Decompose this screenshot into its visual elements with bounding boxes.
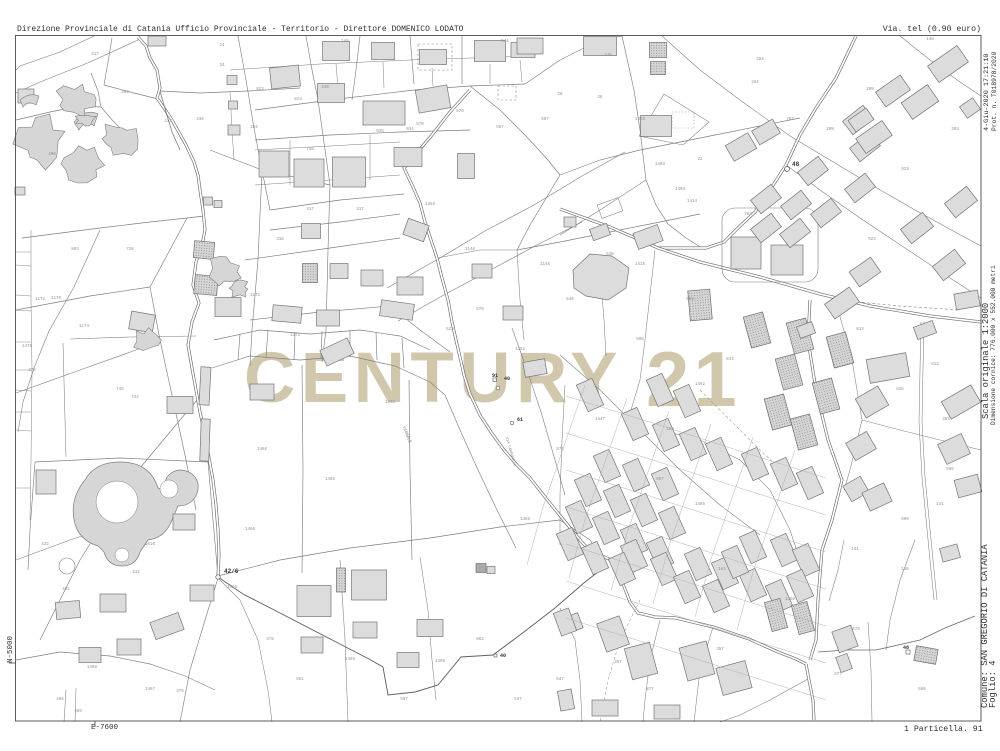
svg-text:746: 746 [116,388,124,392]
svg-text:567: 567 [496,126,504,130]
svg-text:744: 744 [131,396,139,400]
svg-text:815: 815 [896,388,904,392]
svg-text:61: 61 [517,417,523,423]
svg-text:417: 417 [91,53,99,57]
svg-text:1356: 1356 [425,203,436,207]
svg-text:1475: 1475 [22,345,33,349]
svg-text:148: 148 [926,38,934,42]
svg-text:935: 935 [376,130,384,134]
svg-text:440: 440 [321,86,329,90]
svg-text:318: 318 [276,238,284,242]
svg-text:163: 163 [718,568,726,572]
svg-text:1176: 1176 [51,297,62,301]
svg-text:26: 26 [557,93,563,97]
svg-text:1174: 1174 [79,325,90,329]
svg-text:570: 570 [456,110,464,114]
svg-text:298: 298 [826,128,834,132]
svg-text:1414: 1414 [687,200,698,204]
svg-text:1415: 1415 [635,263,646,267]
svg-text:585: 585 [946,468,954,472]
svg-text:507: 507 [400,698,408,702]
svg-text:1469: 1469 [435,660,446,664]
svg-text:402: 402 [62,588,70,592]
svg-text:148: 148 [901,568,909,572]
svg-text:284: 284 [756,58,764,62]
svg-text:697: 697 [656,478,664,482]
svg-text:746: 746 [604,54,612,58]
svg-text:1463: 1463 [385,401,396,405]
svg-text:408: 408 [48,153,56,157]
svg-text:274: 274 [28,369,36,373]
svg-text:298: 298 [866,88,874,92]
svg-text:22: 22 [697,158,703,162]
svg-text:596: 596 [636,338,644,342]
svg-text:823: 823 [294,98,302,102]
svg-text:877: 877 [834,673,842,677]
svg-text:489: 489 [74,710,82,714]
svg-text:1462: 1462 [695,383,706,387]
svg-text:357: 357 [614,661,622,665]
svg-text:1468: 1468 [87,666,98,670]
svg-text:1 Particella. 91: 1 Particella. 91 [904,724,983,734]
svg-text:679: 679 [852,628,860,632]
svg-text:1447: 1447 [595,418,606,422]
svg-text:Prot. n. T018978/2020: Prot. n. T018978/2020 [991,51,998,131]
svg-text:Via. tel (0.90 euro): Via. tel (0.90 euro) [883,24,981,34]
svg-text:862: 862 [476,638,484,642]
svg-text:923: 923 [901,168,909,172]
svg-text:40: 40 [504,376,510,382]
svg-text:1465: 1465 [325,478,336,482]
svg-text:1403: 1403 [635,118,646,122]
svg-text:485: 485 [56,698,64,702]
svg-text:547: 547 [556,678,564,682]
svg-text:303: 303 [942,418,950,422]
svg-text:803: 803 [71,248,79,252]
svg-text:1403: 1403 [655,163,666,167]
svg-text:548: 548 [606,253,614,257]
svg-text:24: 24 [219,44,225,48]
svg-text:40: 40 [500,653,506,659]
svg-text:N-5000: N-5000 [7,635,15,663]
svg-text:417: 417 [164,120,172,124]
svg-text:42/6: 42/6 [224,568,239,575]
svg-text:Foglio: 4: Foglio: 4 [988,660,998,708]
svg-text:1373: 1373 [290,334,301,338]
svg-text:738: 738 [126,248,134,252]
svg-text:24: 24 [219,64,225,68]
svg-text:812: 812 [931,363,939,367]
svg-text:432: 432 [41,543,49,547]
svg-text:1352: 1352 [515,348,526,352]
svg-text:284: 284 [250,126,258,130]
svg-text:809: 809 [901,518,909,522]
svg-text:588: 588 [686,298,694,302]
svg-text:48: 48 [903,645,909,651]
svg-text:91: 91 [492,373,498,379]
svg-text:141: 141 [851,548,859,552]
svg-text:763: 763 [744,213,752,217]
svg-text:317: 317 [356,208,364,212]
svg-text:1172: 1172 [250,294,261,298]
svg-text:163: 163 [666,428,674,432]
svg-text:763: 763 [786,118,794,122]
svg-text:378: 378 [176,690,184,694]
svg-text:567: 567 [541,118,549,122]
svg-text:1172: 1172 [35,298,46,302]
svg-text:1404: 1404 [675,188,686,192]
svg-text:523: 523 [446,328,454,332]
svg-text:561: 561 [296,678,304,682]
svg-text:317: 317 [306,208,314,212]
svg-text:823: 823 [256,88,264,92]
svg-text:1450: 1450 [785,598,796,602]
svg-text:E-7600: E-7600 [91,724,119,732]
svg-text:304: 304 [121,91,129,95]
svg-text:1016: 1016 [227,586,238,590]
svg-text:1466: 1466 [520,518,531,522]
svg-text:718: 718 [306,148,314,152]
svg-text:923: 923 [868,238,876,242]
svg-text:432: 432 [132,571,140,575]
svg-text:934: 934 [406,128,414,132]
svg-text:1466: 1466 [257,448,268,452]
svg-text:4-Giu-2020 17:21:10: 4-Giu-2020 17:21:10 [983,54,991,132]
svg-text:1469: 1469 [345,658,356,662]
svg-text:26: 26 [597,96,603,100]
svg-text:Direzione Provinciale di Catan: Direzione Provinciale di Catania Ufficio… [17,25,464,34]
svg-text:1146: 1146 [465,248,476,252]
svg-text:357: 357 [716,648,724,652]
svg-text:546: 546 [566,298,574,302]
svg-text:547: 547 [514,698,522,702]
svg-text:643: 643 [726,358,734,362]
svg-text:378: 378 [266,638,274,642]
svg-text:813: 813 [856,328,864,332]
svg-text:48: 48 [792,161,800,168]
svg-text:284: 284 [751,81,759,85]
svg-text:148: 148 [341,40,349,44]
svg-text:141: 141 [936,503,944,507]
svg-text:1010: 1010 [145,543,156,547]
svg-text:1146: 1146 [540,263,551,267]
svg-text:1466: 1466 [245,528,256,532]
svg-text:1467: 1467 [145,688,156,692]
svg-text:Dimensione cornice: 776.000 x: Dimensione cornice: 776.000 x 552.000 me… [990,265,997,425]
svg-text:570: 570 [416,123,424,127]
svg-text:436: 436 [196,118,204,122]
svg-text:1465: 1465 [695,503,706,507]
svg-text:578: 578 [476,308,484,312]
svg-text:877: 877 [646,688,654,692]
svg-text:303: 303 [951,128,959,132]
svg-text:586: 586 [918,688,926,692]
svg-text:574: 574 [556,448,564,452]
svg-text:CENTURY: CENTURY [244,339,623,418]
svg-text:544: 544 [501,40,509,44]
